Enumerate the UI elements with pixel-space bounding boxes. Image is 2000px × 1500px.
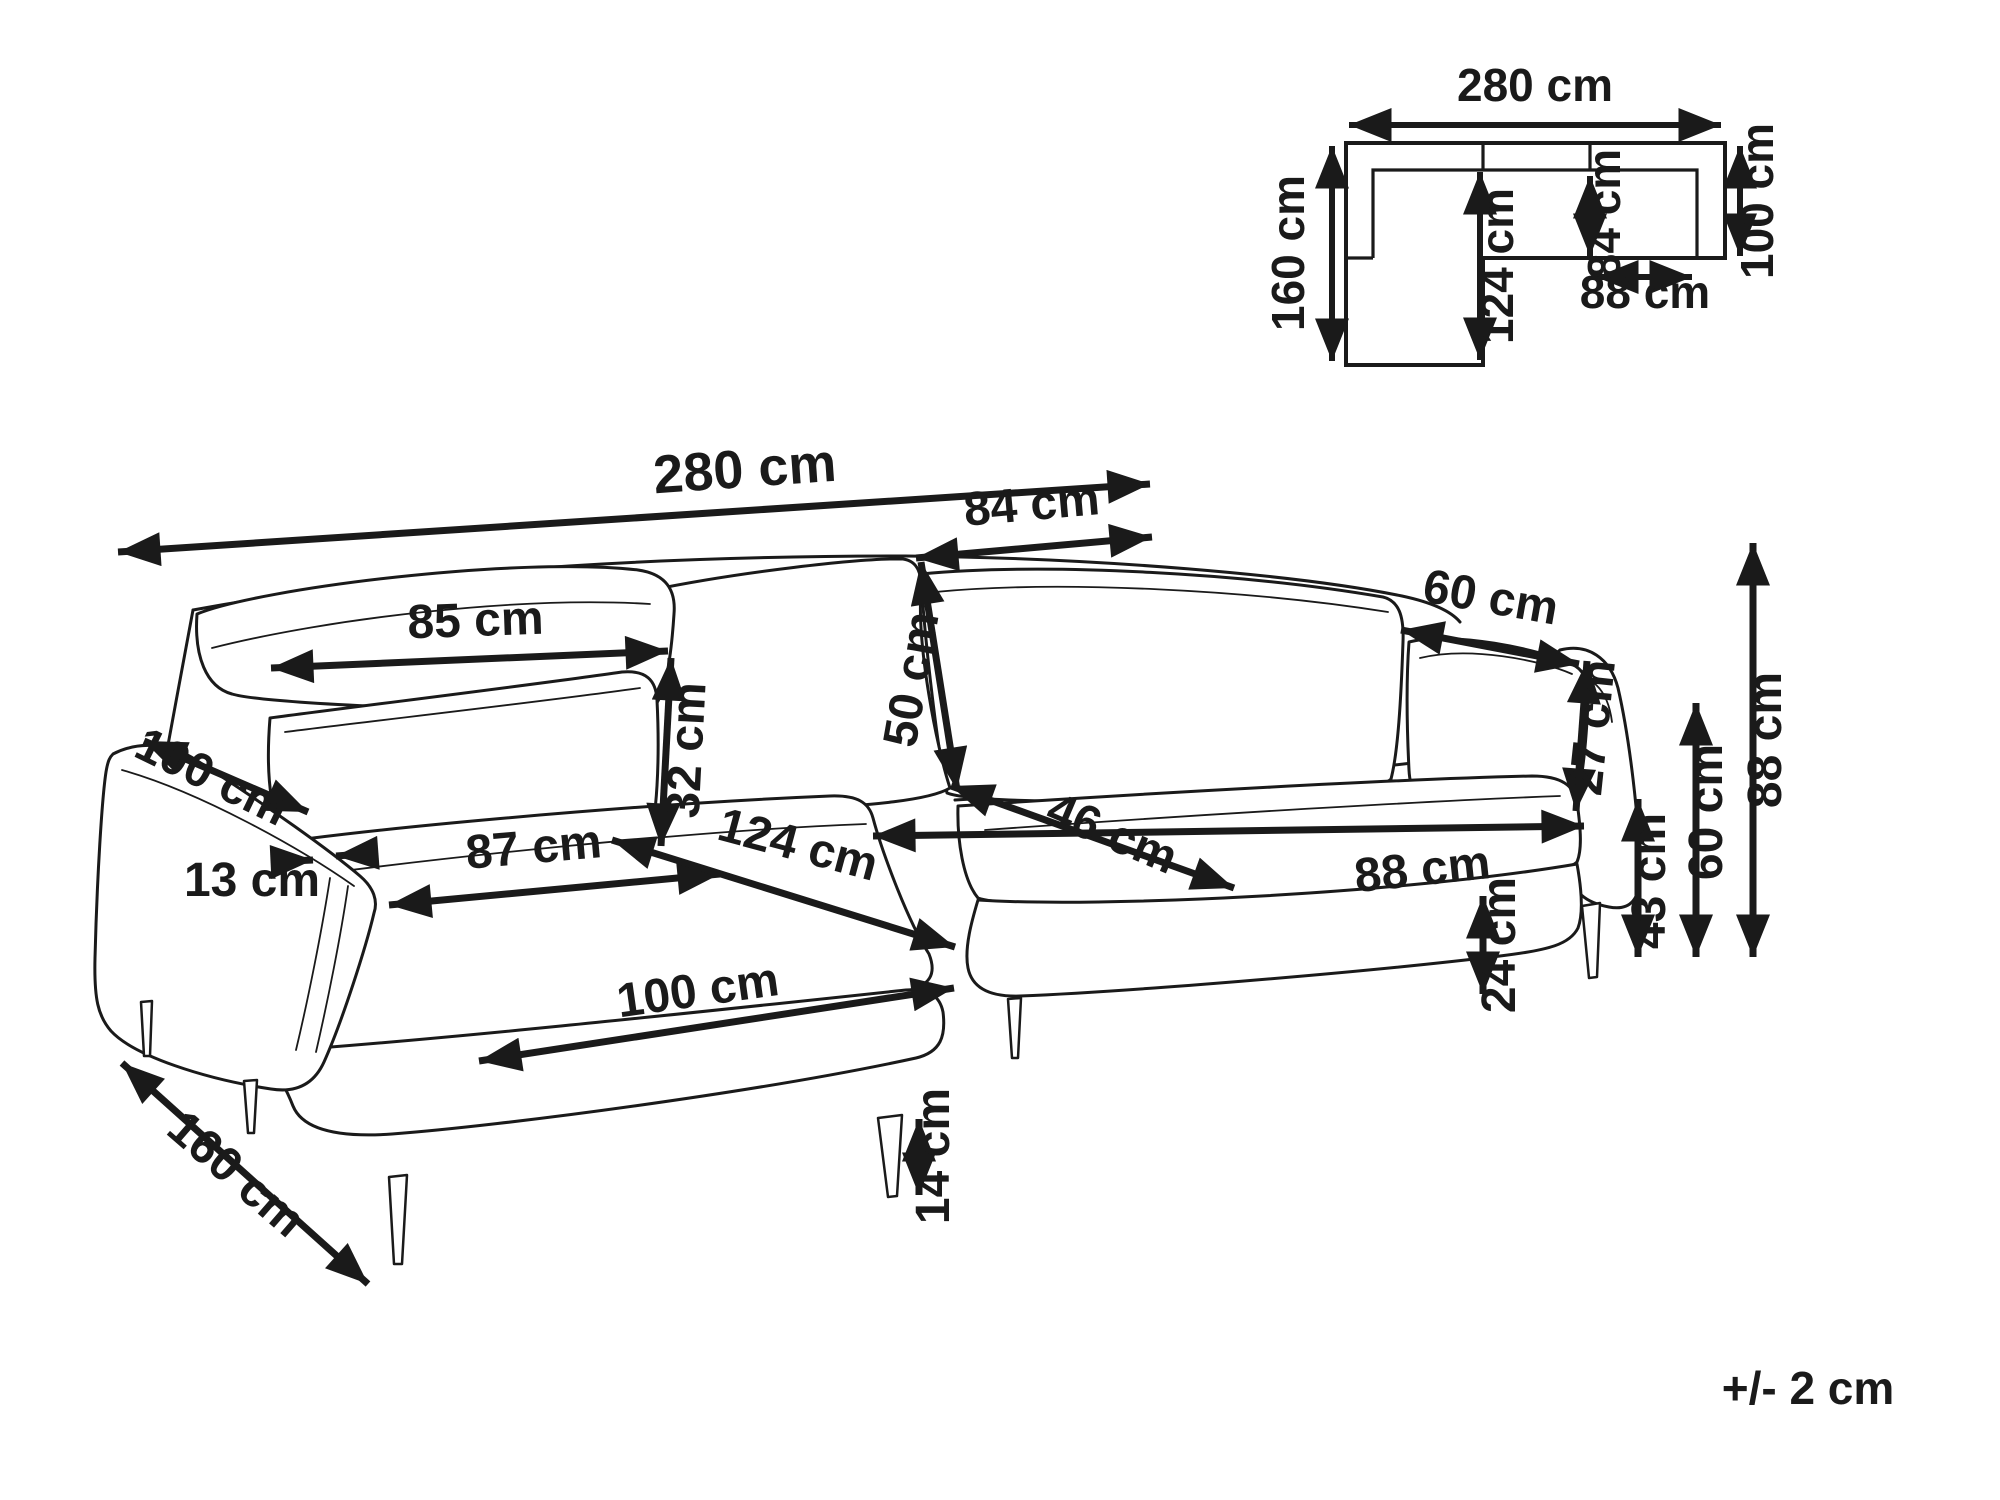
dim-label: 43 cm — [1623, 813, 1676, 949]
leg-chaise-left — [389, 1175, 407, 1264]
dim-plan-body-depth: 100 cm — [1731, 123, 1783, 279]
leg-seat-middle — [1008, 998, 1021, 1058]
dim-label: 32 cm — [656, 681, 716, 820]
floorplan-dimensions: 280 cm160 cm100 cm124 cm84 cm88 cm — [1262, 59, 1783, 361]
sofa-back-left-edge — [168, 610, 193, 745]
dim-plan-seat-width: 88 cm — [1580, 266, 1710, 318]
dim-label: 280 cm — [1457, 59, 1613, 111]
dim-armrest-height: 60 cm — [1680, 703, 1733, 957]
dim-seat-height: 43 cm — [1623, 799, 1676, 957]
dim-label: 24 cm — [1473, 877, 1526, 1013]
dim-plan-depth-total: 160 cm — [1262, 146, 1332, 361]
dim-label: 100 cm — [1731, 123, 1783, 279]
dim-base-height: 24 cm — [1473, 877, 1526, 1013]
dim-label: 14 cm — [907, 1088, 960, 1224]
leg-chaise-front — [878, 1115, 902, 1197]
dim-label: 124 cm — [1471, 188, 1523, 344]
sofa-dimension-diagram: 280 cm160 cm100 cm124 cm84 cm88 cm 280 c… — [0, 0, 2000, 1500]
dim-label: 85 cm — [407, 592, 545, 650]
dim-plan-chaise-length: 124 cm — [1471, 172, 1523, 360]
dim-label: 84 cm — [1578, 149, 1630, 279]
floorplan-top-view — [1346, 143, 1725, 365]
dim-leg-height: 14 cm — [907, 1088, 960, 1224]
floorplan-seat-inset — [1373, 170, 1697, 258]
tolerance-note: +/- 2 cm — [1722, 1362, 1895, 1414]
dim-total-height: 88 cm — [1739, 543, 1792, 957]
dim-arrow — [336, 853, 376, 856]
dim-plan-seat-depth: 84 cm — [1578, 149, 1630, 279]
dim-label: 84 cm — [962, 472, 1102, 537]
dim-front-pillow-height: 32 cm — [656, 658, 716, 846]
floorplan-outline — [1346, 143, 1725, 365]
dim-arrow — [271, 860, 313, 862]
dim-label: 88 cm — [1580, 266, 1710, 318]
diagram-canvas: 280 cm160 cm100 cm124 cm84 cm88 cm 280 c… — [0, 0, 2000, 1500]
dim-armrest-width-arrow-left — [271, 860, 313, 862]
dim-label: 60 cm — [1419, 560, 1562, 636]
dim-label: 160 cm — [157, 1101, 315, 1248]
dim-armrest-width-arrow-right — [336, 853, 376, 856]
dim-arrow — [916, 537, 1152, 558]
dim-label: 280 cm — [651, 433, 838, 506]
leg-front-right — [1582, 903, 1600, 978]
dim-label: 88 cm — [1739, 672, 1792, 808]
dim-plan-width-total: 280 cm — [1349, 59, 1721, 125]
leg-front-left — [244, 1080, 257, 1133]
dim-label: 60 cm — [1680, 744, 1733, 880]
leg-back-left — [141, 1001, 152, 1056]
dim-label: 160 cm — [1262, 175, 1314, 331]
